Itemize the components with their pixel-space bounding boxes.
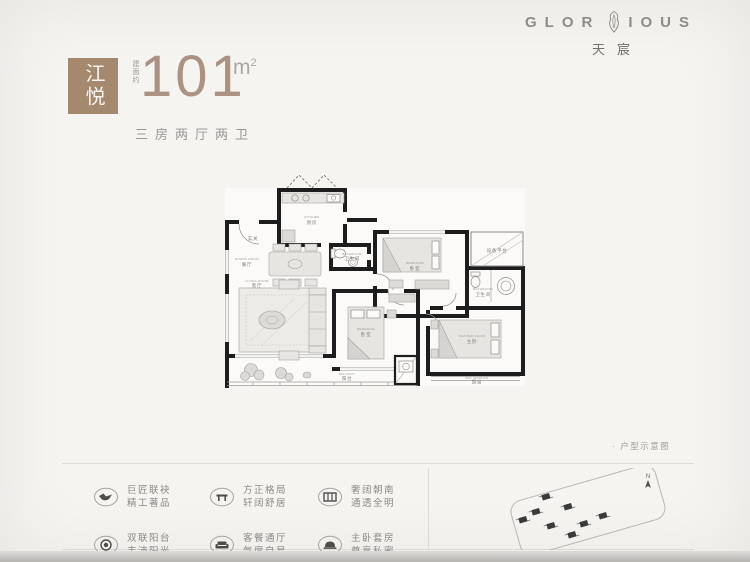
feature-item: 奢阔朝南通透全明 [317, 476, 427, 518]
room-label: 设备平台 [487, 247, 508, 254]
feature-line1: 方正格局 [243, 484, 287, 497]
area-value: 101 [140, 48, 246, 106]
building-marker [543, 521, 558, 530]
building-markers [515, 492, 610, 539]
feature-line1: 主卧套房 [351, 532, 395, 545]
room-label: BEDROOM [406, 261, 424, 265]
feature-line1: 巨匠联袂 [127, 484, 171, 497]
room-label: 玄关 [248, 235, 258, 242]
room-label: DINING ROOM [235, 257, 259, 261]
building-marker [595, 511, 610, 520]
window-icon [317, 487, 343, 507]
feature-line2: 精工著品 [127, 497, 171, 510]
feature-line2: 轩阔舒居 [243, 497, 287, 510]
building-marker [560, 502, 575, 511]
brand-emblem-icon [606, 10, 622, 34]
feature-item: 巨匠联袂精工著品 [93, 476, 209, 518]
building-marker [515, 515, 530, 524]
feature-grid: 巨匠联袂精工著品 方正格局轩阔舒居 奢阔朝南通透全明 [93, 476, 427, 562]
building-marker [538, 492, 553, 501]
site-boundary [508, 468, 668, 550]
layout-description: 三房两厅两卫 [135, 124, 255, 143]
building-marker [528, 507, 543, 516]
divider-vertical [428, 468, 429, 550]
room-label: 卧室 [361, 331, 371, 338]
handshake-icon [93, 487, 119, 507]
siteplan: N [488, 468, 703, 555]
page-bottom-edge [0, 551, 750, 562]
room-label: 阳台 [342, 375, 352, 382]
building-marker [576, 519, 591, 528]
feature-line1: 奢阔朝南 [351, 484, 395, 497]
series-badge: 江悦 [68, 58, 118, 114]
room-label: BEDROOM [357, 327, 375, 331]
north-label: N [646, 474, 650, 480]
north-arrow-icon: N [645, 474, 651, 488]
floorplan: KITCHEN 厨房 玄关 DINING ROOM 餐厅 LIVING ROOM… [225, 170, 531, 432]
area-prefix: 建面约 [130, 60, 140, 84]
room-label: MASTER ROOM [459, 334, 485, 338]
room-label: 厨房 [307, 219, 317, 226]
feature-line1: 双联阳台 [127, 532, 171, 545]
room-label: 主卧 [467, 338, 477, 345]
room-label: 客厅 [252, 282, 262, 289]
feature-item: 方正格局轩阔舒居 [209, 476, 317, 518]
series-badge-label: 江悦 [83, 63, 103, 109]
divider-top [62, 463, 694, 464]
room-label: 餐厅 [242, 261, 252, 268]
room-label: 卫生间 [475, 291, 491, 298]
room-label: 卧室 [410, 265, 420, 272]
living-room-set [239, 280, 326, 360]
logo-letters-left: GLOR [525, 14, 600, 31]
logo-letters-right: IOUS [628, 14, 697, 31]
plan-disclaimer: · 户型示意图 [612, 440, 670, 452]
brand-name-cn: 天宸 [518, 39, 704, 58]
room-label: BATHROOM [473, 287, 493, 291]
feature-line1: 客餐通厅 [243, 532, 287, 545]
brand-logo: GLOR IOUS 天宸 [518, 10, 704, 58]
poster-page: 江悦 建面约 101 m2 三房两厅两卫 GLOR IOUS 天宸 [0, 0, 750, 562]
area-unit: m2 [233, 56, 257, 80]
building-marker [564, 530, 579, 539]
room-label: 飘窗 [472, 379, 482, 386]
utility-shaft [395, 356, 417, 384]
floorplan-svg: KITCHEN 厨房 玄关 DINING ROOM 餐厅 LIVING ROOM… [225, 170, 531, 432]
feature-line2: 通透全明 [351, 497, 395, 510]
layout-icon [209, 487, 235, 507]
siteplan-svg: N [488, 468, 703, 550]
roof-shaft [287, 175, 337, 188]
room-label: KITCHEN [304, 215, 319, 219]
room-label: 卫生间 [344, 255, 360, 262]
